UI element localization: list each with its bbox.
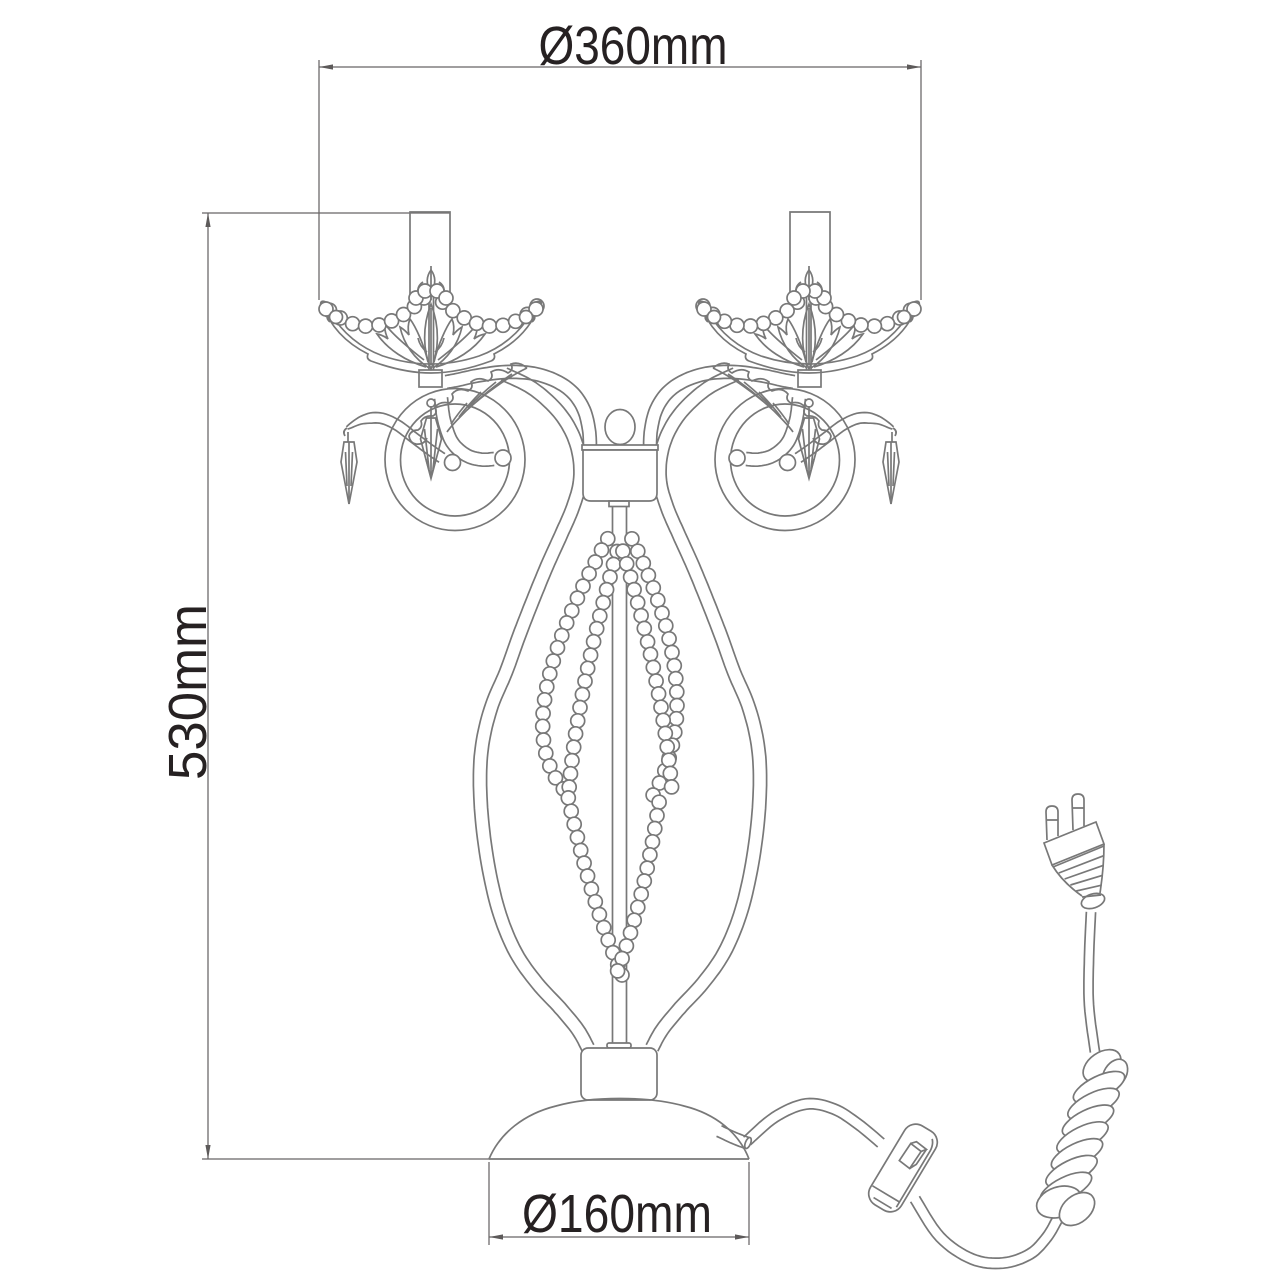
svg-text:Ø160mm: Ø160mm (522, 1184, 712, 1244)
svg-text:530mm: 530mm (158, 604, 218, 780)
